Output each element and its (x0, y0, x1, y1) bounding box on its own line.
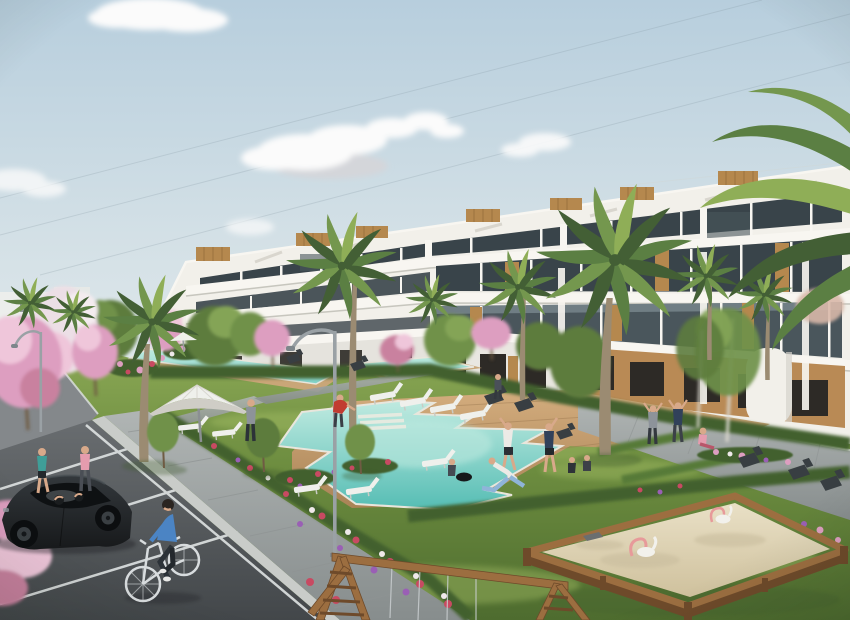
architectural-render-image (0, 0, 850, 620)
render-canvas (0, 0, 850, 620)
vignette-overlay (0, 0, 850, 620)
